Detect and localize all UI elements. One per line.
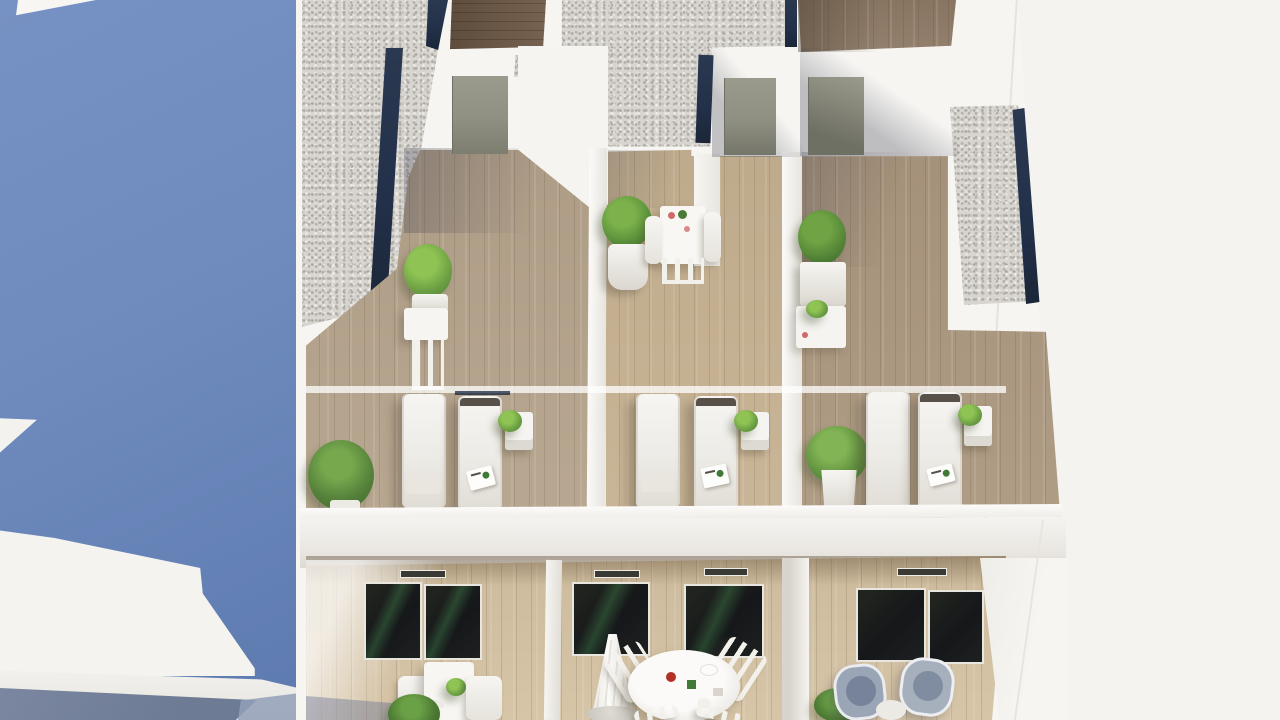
lounger-towel [641,472,675,492]
glass-reflection [426,586,480,658]
vent-grille-t2b [704,568,748,576]
lower-post-t1-t2 [544,560,562,720]
glass-reflection [366,584,420,658]
vent-grille-t3 [897,568,947,576]
bistro-plant-pot [608,244,648,290]
t1-patio-chair-right [466,676,502,720]
lounger-headrest [920,394,960,402]
glass-door-t3-left [856,588,926,662]
terrace3-lounger-right [918,392,962,510]
terrace3-shrub-upper [798,210,846,264]
dark-wood-stair-patch [450,0,546,49]
terrace2-lounger-right [694,396,738,510]
bistro-table-legs [662,258,704,284]
bistro-chair-right [704,212,721,262]
table-item-plate [700,664,718,676]
bistro-table-item-plant [678,210,687,219]
bistro-chair-left [645,216,662,264]
terrace1-lounger-left [402,394,446,508]
terrace1-chair-frame [412,340,444,390]
navy-trim-center-mid [695,55,713,143]
lower-wall-t2-t3 [782,558,809,720]
terrace1-lounger-right [458,396,502,510]
vent-grille-t2a [594,570,640,578]
roof-door-terrace3 [808,77,864,155]
render-canvas [0,0,1280,720]
lounger-headrest [696,398,736,406]
navy-trim-center-top [785,0,797,47]
glass-door-t1-left [364,582,422,660]
terrace3-planter-box [800,262,846,306]
step-trim-dark [455,391,510,395]
terrace3-lounger-left [866,392,910,510]
armchair-right-cushion [913,671,943,701]
terrace1-side-table-plant [498,410,522,432]
glass-door-t1-right [424,584,482,660]
terrace2-side-table-plant [734,410,758,432]
lounger-headrest [460,398,500,406]
lounger-towel [407,474,441,494]
terrace2-lounger-left [636,394,680,508]
terrace1-shrub-upper [404,244,452,298]
vent-grille-t1 [400,570,446,578]
table-item-red [666,672,676,682]
armchair-left-cushion [846,676,876,706]
terrace1-small-table [404,308,448,340]
parasol-base [586,706,640,720]
divider-t1-t2 [587,148,608,514]
terrace3-small-table-pink [802,332,808,338]
bistro-table-item-pink2 [684,226,690,232]
terrace3-small-table-plant [806,300,828,318]
north-terrace-shadow [798,0,878,52]
table-item-grey [713,688,723,696]
bistro-table-item-pink [668,212,675,219]
glass-door-t3-right [928,590,984,664]
t3-side-table-round [876,700,906,720]
roof-door-terrace1 [452,76,508,154]
roof-door-terrace2 [724,78,776,155]
t1-patio-table-plant [446,678,466,696]
table-item-green [687,680,696,689]
terrace3-side-table-plant [958,404,982,426]
